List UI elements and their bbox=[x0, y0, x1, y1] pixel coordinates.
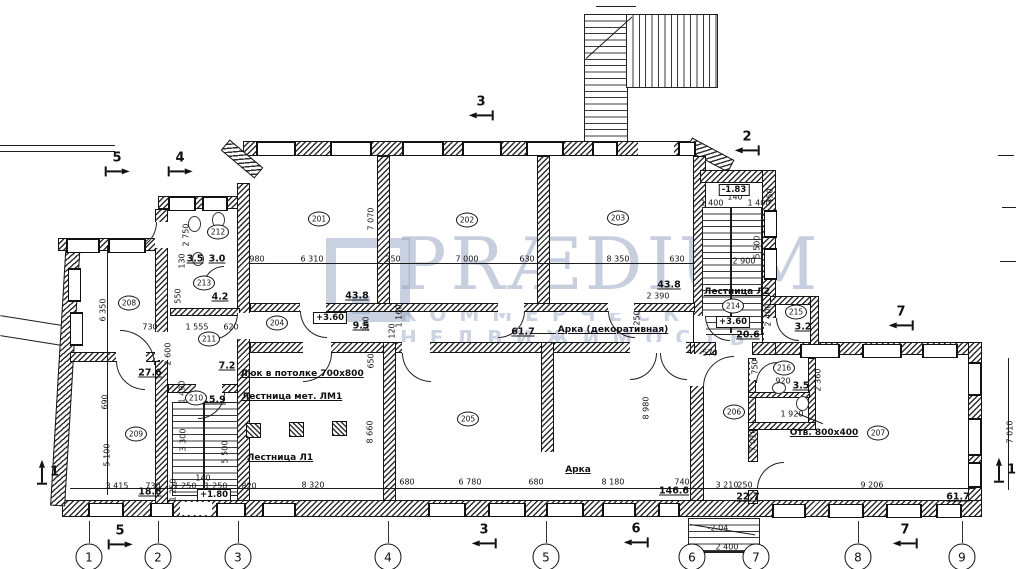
section-mark: 3 bbox=[472, 522, 497, 548]
dim-label: 3 300 bbox=[179, 429, 188, 452]
area-label: 7.2 bbox=[219, 361, 236, 372]
area-label: 61.7 bbox=[511, 327, 534, 338]
dim-label: 2 600 bbox=[164, 343, 173, 366]
adjacent-building-line bbox=[0, 335, 61, 346]
dim-label: 8 980 bbox=[642, 397, 651, 420]
dim-label: 6 350 bbox=[99, 299, 108, 322]
entrance-opening bbox=[638, 142, 674, 155]
window bbox=[678, 142, 696, 156]
dim-label: 690 bbox=[101, 394, 110, 409]
dim-label: 1 920 bbox=[781, 410, 804, 419]
window bbox=[968, 362, 981, 396]
wall-vestibule-bottom bbox=[752, 342, 776, 355]
elevation-badge: -1.83 bbox=[719, 184, 750, 196]
dim-label: 6 780 bbox=[459, 478, 482, 487]
text-label: Люк в потолке 700х800 bbox=[240, 369, 363, 379]
elevation-badge: +1.80 bbox=[197, 489, 231, 501]
room-tag: 203 bbox=[607, 211, 629, 226]
stair-L2-rail bbox=[730, 207, 732, 333]
room-tag: 209 bbox=[125, 427, 147, 442]
section-mark: 2 bbox=[735, 129, 760, 155]
window bbox=[88, 503, 124, 517]
room-tag: 213 bbox=[193, 276, 215, 291]
window bbox=[592, 142, 618, 156]
window bbox=[66, 239, 100, 253]
text-label: Отв. 800х400 bbox=[790, 428, 859, 438]
room-tag: 201 bbox=[308, 212, 330, 227]
column bbox=[246, 423, 261, 438]
window bbox=[936, 504, 962, 518]
section-arrow bbox=[994, 458, 1004, 483]
door-opening bbox=[155, 222, 168, 248]
adjacent-building-line bbox=[0, 315, 61, 326]
section-arrow bbox=[469, 110, 494, 120]
dim-label: 1 160 bbox=[395, 305, 404, 328]
text-label: Лестница Л1 bbox=[247, 453, 313, 463]
axis-leader-line bbox=[89, 521, 90, 543]
column bbox=[332, 421, 347, 436]
reference-dash bbox=[998, 155, 1014, 156]
text-label: Лестница мет. ЛМ1 bbox=[242, 392, 342, 402]
section-mark: 3 bbox=[469, 94, 494, 120]
dim-label: 130 bbox=[178, 253, 187, 268]
room-tag: 204 bbox=[266, 316, 288, 331]
dim-label: 8 180 bbox=[602, 478, 625, 487]
dim-label: 5 500 bbox=[221, 441, 230, 464]
dim-label: -2.04 bbox=[708, 524, 729, 533]
axis-leader-line bbox=[858, 521, 859, 543]
arch-swing bbox=[630, 353, 657, 380]
door-swing bbox=[120, 330, 155, 365]
axis-bubble: 3 bbox=[225, 544, 252, 569]
dim-label: 820 bbox=[241, 482, 256, 491]
text-label: Лестница Л2 bbox=[704, 287, 770, 297]
section-mark: 7 bbox=[889, 304, 914, 330]
dim-label: 6 310 bbox=[301, 255, 324, 264]
dim-label: 7 010 bbox=[749, 429, 758, 452]
text-label: Арка (декоративная) bbox=[558, 325, 668, 335]
section-number: 1 bbox=[50, 465, 59, 480]
section-number: 5 bbox=[115, 523, 124, 538]
window bbox=[330, 142, 372, 156]
room-tag: 212 bbox=[207, 225, 229, 240]
window bbox=[764, 248, 777, 280]
window bbox=[602, 503, 636, 517]
dim-label: 1 555 bbox=[186, 323, 209, 332]
adjacent-building-line bbox=[0, 151, 115, 152]
section-mark: 4 bbox=[168, 150, 193, 176]
window bbox=[428, 503, 466, 517]
section-arrow bbox=[108, 539, 133, 549]
area-label: 3.0 bbox=[209, 254, 226, 265]
stair-direction-line bbox=[596, 6, 636, 7]
room-tag: 207 bbox=[867, 426, 889, 441]
section-number: 1 bbox=[1007, 463, 1016, 478]
door-swing bbox=[703, 356, 734, 387]
window bbox=[168, 197, 196, 211]
wall-202-203 bbox=[537, 156, 550, 306]
area-label: 146.6 bbox=[659, 486, 689, 497]
window bbox=[968, 418, 981, 456]
dim-label: 680 bbox=[528, 478, 543, 487]
window bbox=[202, 197, 228, 211]
axis-bubble: 6 bbox=[679, 544, 706, 569]
wall-205-divider bbox=[383, 342, 396, 505]
dim-label: 630 bbox=[669, 255, 684, 264]
window bbox=[658, 503, 680, 517]
section-number: 3 bbox=[479, 522, 488, 537]
text-label: Арка bbox=[565, 465, 591, 475]
dim-label: 250 bbox=[633, 310, 642, 325]
axis-bubble: 7 bbox=[743, 544, 770, 569]
section-number: 6 bbox=[631, 521, 640, 536]
dim-label: 1 400 bbox=[701, 199, 724, 208]
dim-label: 2 360 bbox=[814, 369, 823, 392]
area-label: 43.8 bbox=[345, 291, 368, 302]
dim-label: 750 bbox=[751, 359, 760, 374]
dim-label: 8 320 bbox=[302, 481, 325, 490]
dim-label: 7 010 bbox=[1006, 421, 1015, 444]
window bbox=[402, 142, 444, 156]
dim-label: 2 750 bbox=[182, 224, 191, 247]
dim-label: 650 bbox=[367, 353, 376, 368]
section-arrow bbox=[735, 145, 760, 155]
window bbox=[862, 344, 902, 358]
dim-label: 250 bbox=[737, 481, 752, 490]
dim-label: 250 bbox=[385, 255, 400, 264]
dim-label: 2 400 bbox=[764, 304, 773, 327]
axis-leader-line bbox=[238, 521, 239, 543]
axis-leader-line bbox=[546, 521, 547, 543]
dim-label: 3 210 bbox=[716, 481, 739, 490]
window bbox=[828, 504, 864, 518]
area-label: 22.7 bbox=[736, 492, 759, 503]
door-opening bbox=[237, 313, 250, 339]
window bbox=[772, 504, 806, 518]
door-opening bbox=[690, 354, 704, 386]
section-mark: 6 bbox=[624, 521, 649, 547]
section-arrow bbox=[624, 537, 649, 547]
section-mark: 7 bbox=[893, 522, 918, 548]
dim-label: 7 070 bbox=[367, 208, 376, 231]
window bbox=[150, 503, 174, 517]
window bbox=[526, 142, 564, 156]
area-label: 18.8 bbox=[138, 487, 161, 498]
arch-opening bbox=[541, 452, 554, 500]
window bbox=[108, 239, 146, 253]
section-arrow bbox=[472, 538, 497, 548]
window bbox=[886, 504, 922, 518]
dim-label: 2 400 bbox=[716, 543, 739, 552]
dim-label: 730 bbox=[142, 323, 157, 332]
room-tag: 202 bbox=[456, 213, 478, 228]
window bbox=[764, 210, 777, 238]
section-arrow bbox=[168, 166, 193, 176]
dim-label: 2 390 bbox=[647, 292, 670, 301]
window bbox=[488, 503, 526, 517]
dim-label: 550 bbox=[174, 288, 183, 303]
column bbox=[289, 422, 304, 437]
section-mark: 5 bbox=[108, 523, 133, 549]
reference-dash bbox=[1002, 207, 1016, 208]
dim-label: 8 350 bbox=[607, 255, 630, 264]
room-tag: 208 bbox=[118, 296, 140, 311]
dim-label: 570 bbox=[702, 349, 717, 358]
axis-bubble: 2 bbox=[145, 544, 172, 569]
axis-bubble: 9 bbox=[949, 544, 976, 569]
room-tag: 215 bbox=[785, 305, 807, 320]
area-label: 3.2 bbox=[795, 322, 812, 333]
section-arrow bbox=[889, 320, 914, 330]
section-mark: 1 bbox=[37, 460, 59, 485]
area-label: 27.6 bbox=[138, 368, 161, 379]
door-opening bbox=[694, 316, 706, 342]
section-mark: 1 bbox=[994, 458, 1016, 483]
window bbox=[800, 344, 840, 358]
adjacent-building-line bbox=[0, 145, 115, 146]
axis-leader-line bbox=[388, 521, 389, 543]
dim-label: 980 bbox=[249, 255, 264, 264]
section-number: 5 bbox=[112, 150, 121, 165]
area-label: 3.5 bbox=[187, 254, 204, 265]
exterior-stair-flight bbox=[626, 14, 718, 88]
area-label: 43.8 bbox=[657, 280, 680, 291]
axis-leader-line bbox=[158, 521, 159, 543]
elevation-badge: +3.60 bbox=[313, 312, 347, 324]
room-tag: 211 bbox=[198, 332, 220, 347]
area-label: 9.5 bbox=[353, 321, 370, 332]
axis-bubble: 4 bbox=[375, 544, 402, 569]
dim-label: 5 500 bbox=[753, 236, 762, 259]
section-number: 4 bbox=[175, 150, 184, 165]
section-mark: 5 bbox=[105, 150, 130, 176]
floor-plan-canvas: PRÆDIUM КОММЕРЧЕСКАЯ НЕДВИЖИМОСТЬ bbox=[0, 0, 1024, 569]
area-label: 61.7 bbox=[946, 492, 969, 503]
section-arrow bbox=[37, 460, 47, 485]
dim-label: 7 000 bbox=[456, 255, 479, 264]
window bbox=[68, 268, 81, 302]
dim-label: 1 250 bbox=[174, 482, 197, 491]
dim-label: 8 660 bbox=[366, 421, 375, 444]
wall-201-202 bbox=[377, 156, 390, 306]
entrance-opening bbox=[180, 502, 212, 515]
dim-label: 3 415 bbox=[106, 482, 129, 491]
section-number: 7 bbox=[896, 304, 905, 319]
section-arrow bbox=[893, 538, 918, 548]
dim-label: 620 bbox=[223, 323, 238, 332]
axis-leader-line bbox=[962, 521, 963, 543]
window bbox=[462, 142, 502, 156]
area-label: 4.2 bbox=[212, 292, 229, 303]
room-tag: 205 bbox=[457, 412, 479, 427]
dim-label: 5 100 bbox=[103, 444, 112, 467]
section-number: 3 bbox=[476, 94, 485, 109]
dim-label: 680 bbox=[399, 478, 414, 487]
arch-swing bbox=[660, 353, 687, 380]
area-label: 20.6 bbox=[736, 330, 759, 341]
axis-bubble: 8 bbox=[845, 544, 872, 569]
window bbox=[262, 503, 296, 517]
room-tag: 206 bbox=[723, 405, 745, 420]
room-tag: 210 bbox=[185, 391, 207, 406]
window bbox=[546, 503, 584, 517]
exterior-stair-flight bbox=[584, 14, 628, 142]
window bbox=[256, 142, 296, 156]
dim-label: 920 bbox=[775, 377, 790, 386]
window bbox=[922, 344, 958, 358]
window bbox=[70, 312, 83, 346]
door-swing bbox=[402, 353, 431, 382]
elevation-badge: +3.60 bbox=[716, 316, 750, 328]
door-swing bbox=[757, 462, 784, 489]
room-tag: 214 bbox=[722, 299, 744, 314]
dim-label: 630 bbox=[519, 255, 534, 264]
dim-label: 450 bbox=[766, 188, 775, 203]
axis-bubble: 1 bbox=[76, 544, 103, 569]
window bbox=[968, 462, 981, 488]
dim-label: 9 206 bbox=[861, 481, 884, 490]
axis-bubble: 5 bbox=[533, 544, 560, 569]
window bbox=[216, 503, 246, 517]
room-tag: 216 bbox=[773, 361, 795, 376]
reference-dash bbox=[1000, 261, 1016, 262]
area-label: 3.5 bbox=[793, 381, 810, 392]
section-number: 2 bbox=[742, 129, 751, 144]
section-arrow bbox=[105, 166, 130, 176]
section-number: 7 bbox=[900, 522, 909, 537]
